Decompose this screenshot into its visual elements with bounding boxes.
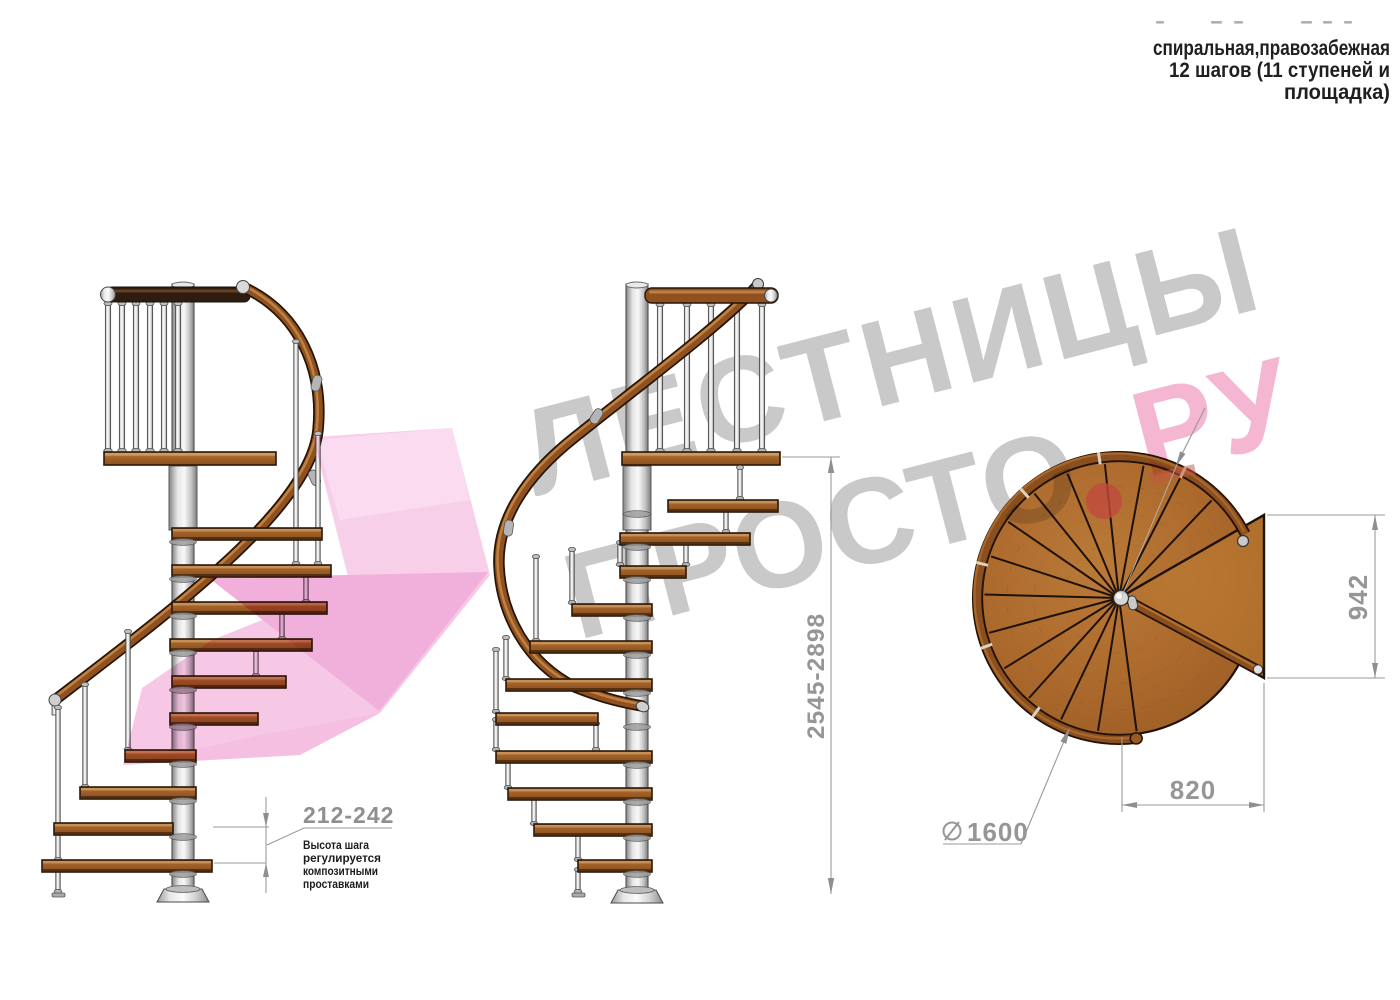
svg-text:Высота шага: Высота шага xyxy=(303,838,369,852)
svg-text:212-242: 212-242 xyxy=(303,802,394,828)
svg-text:12 шагов (11 ступеней и: 12 шагов (11 ступеней и xyxy=(1169,59,1390,82)
svg-text:820: 820 xyxy=(1170,775,1216,805)
svg-text:2545-2898: 2545-2898 xyxy=(803,613,830,739)
svg-text:композитными: композитными xyxy=(303,864,378,878)
svg-text:942: 942 xyxy=(1343,574,1373,620)
svg-text:спиральная,правозабежная: спиральная,правозабежная xyxy=(1153,37,1390,60)
svg-text:регулируется: регулируется xyxy=(303,851,381,865)
svg-text:проставками: проставками xyxy=(303,877,369,891)
svg-text:площадка): площадка) xyxy=(1284,81,1390,104)
svg-text:1600: 1600 xyxy=(967,817,1029,847)
